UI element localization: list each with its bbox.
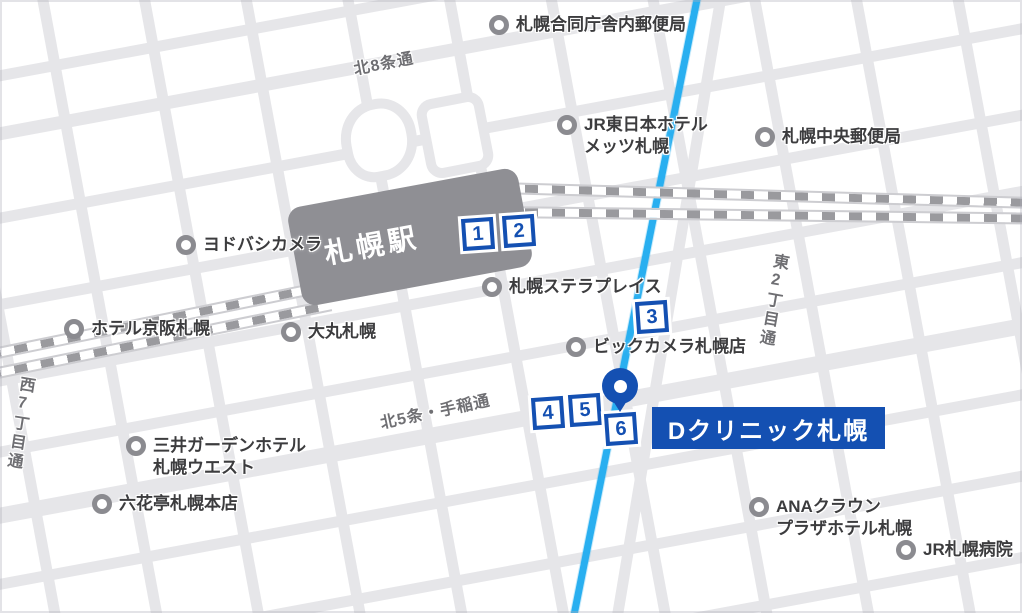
poi-daimaru-sapporo: 大丸札幌 [281,321,376,343]
poi-jr-east-hotel-mets-sapporo: JR東日本ホテル メッツ札幌 [557,114,708,158]
poi-label: 六花亭札幌本店 [119,494,238,513]
poi-circle-icon [896,540,916,560]
poi-label: プラザホテル札幌 [776,519,912,538]
exit-marker-1: 1 [461,217,495,251]
poi-label: JR東日本ホテル [584,115,708,134]
map-canvas: 札幌駅 北8条通 北5条・手稲通 西7丁目通 東2丁目通 札幌合同庁舎内郵便局 … [0,0,1022,613]
poi-jr-sapporo-hospital: JR札幌病院 [896,539,1013,561]
poi-circle-icon [92,494,112,514]
poi-yodobashi-camera: ヨドバシカメラ [176,234,322,256]
poi-sapporo-stellar-place: 札幌ステラプレイス [482,276,662,298]
poi-label: 札幌ウエスト [153,458,255,477]
poi-ana-crowne-plaza-hotel-sapporo: ANAクラウン プラザホテル札幌 [749,496,912,540]
road [16,0,209,613]
poi-circle-icon [489,15,509,35]
poi-circle-icon [749,497,769,517]
poi-label: ホテル京阪札幌 [91,319,210,338]
poi-rokkatei-sapporo-honten: 六花亭札幌本店 [92,493,238,515]
poi-hotel-keihan-sapporo: ホテル京阪札幌 [64,318,210,340]
poi-circle-icon [126,436,146,456]
poi-label: 大丸札幌 [308,322,376,341]
road [901,0,1022,613]
pin-head [602,368,638,404]
poi-label: ANAクラウン [776,497,881,516]
poi-label: JR札幌病院 [923,540,1013,559]
poi-mitsui-garden-hotel-sapporo-west: 三井ガーデンホテル 札幌ウエスト [126,435,306,479]
poi-label: 札幌合同庁舎内郵便局 [516,15,686,34]
poi-bic-camera-sapporo: ビックカメラ札幌店 [566,336,746,358]
exit-marker-6: 6 [604,412,638,446]
poi-label: 札幌中央郵便局 [782,127,901,146]
poi-circle-icon [566,337,586,357]
exit-marker-4: 4 [531,396,565,430]
poi-circle-icon [64,319,84,339]
poi-label: 札幌ステラプレイス [509,277,662,296]
poi-circle-icon [755,127,775,147]
poi-circle-icon [557,115,577,135]
poi-circle-icon [281,322,301,342]
exit-marker-2: 2 [502,214,536,248]
clinic-map-pin-icon [602,368,638,414]
exit-marker-3: 3 [635,300,669,334]
poi-label: ヨドバシカメラ [203,235,322,254]
poi-label: ビックカメラ札幌店 [593,337,746,356]
poi-label: 三井ガーデンホテル [153,436,306,455]
poi-label: メッツ札幌 [584,137,669,156]
clinic-banner: Dクリニック札幌 [652,407,885,449]
station-label: 札幌駅 [321,216,423,273]
poi-circle-icon [482,277,502,297]
poi-circle-icon [176,235,196,255]
poi-sapporo-godochosha-post-office: 札幌合同庁舎内郵便局 [489,14,686,36]
exit-marker-5: 5 [568,393,602,427]
poi-sapporo-central-post-office: 札幌中央郵便局 [755,126,901,148]
